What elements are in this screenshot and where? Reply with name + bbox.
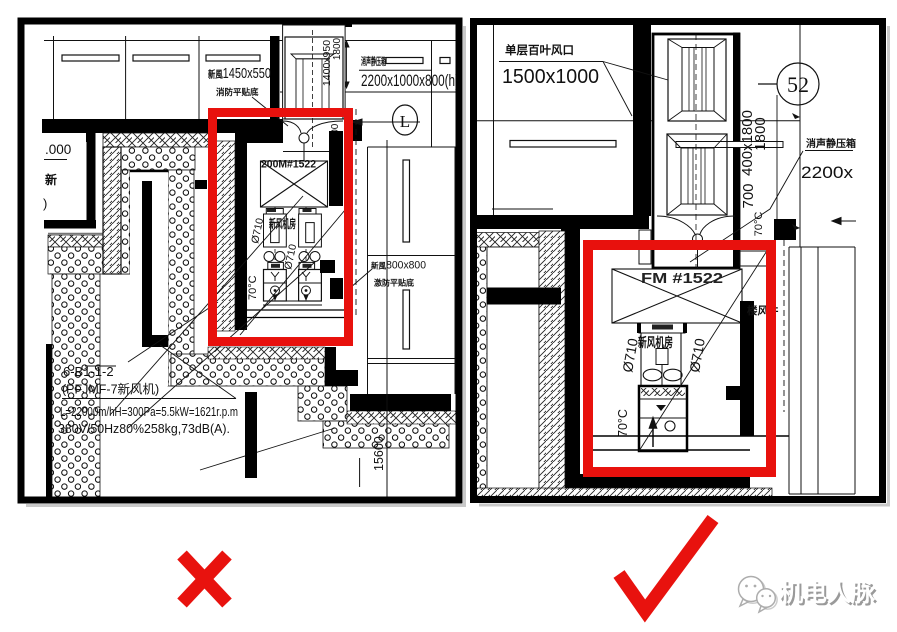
svg-text:FM #1522: FM #1522 [641,270,723,287]
svg-text:新风机房: 新风机房 [269,216,296,231]
svg-text:新风机房: 新风机房 [638,335,673,350]
svg-text:700: 700 [740,183,757,208]
svg-text:(PFJMF-7新风机): (PFJMF-7新风机) [62,382,159,397]
svg-text:.000: .000 [45,142,71,157]
svg-text:1800: 1800 [332,37,343,60]
svg-text:380V/50Hz80%258kg,73dB(A).: 380V/50Hz80%258kg,73dB(A). [58,422,230,436]
svg-text:): ) [43,196,47,211]
svg-text:70°C: 70°C [753,212,765,237]
svg-text:2200x1000x800(h): 2200x1000x800(h) [361,72,459,90]
svg-text:新: 新 [45,172,57,187]
svg-text:70°C: 70°C [247,275,259,300]
svg-text:70°C: 70°C [616,409,630,437]
svg-text:单层百叶风口: 单层百叶风口 [505,43,574,57]
svg-text:机电人脉: 机电人脉 [779,580,876,607]
svg-text:52: 52 [787,72,809,97]
svg-text:新風800x800: 新風800x800 [371,260,426,272]
svg-text:L=22000m/hH=300Pa=5.5kW=1621r.: L=22000m/hH=300Pa=5.5kW=1621r.p.m [60,405,238,419]
svg-text:200M#1522: 200M#1522 [261,159,316,171]
svg-text:消声静压箱: 消声静压箱 [361,55,386,68]
svg-text:1800: 1800 [752,117,769,150]
svg-text:2200x: 2200x [801,163,854,182]
svg-text:15600: 15600 [372,436,386,471]
svg-text:激防平贴底: 激防平贴底 [374,278,414,288]
svg-text:1500x1000: 1500x1000 [502,66,599,88]
svg-text:消防平贴底: 消防平贴底 [216,87,259,97]
svg-text:消声静压箱: 消声静压箱 [806,137,856,150]
